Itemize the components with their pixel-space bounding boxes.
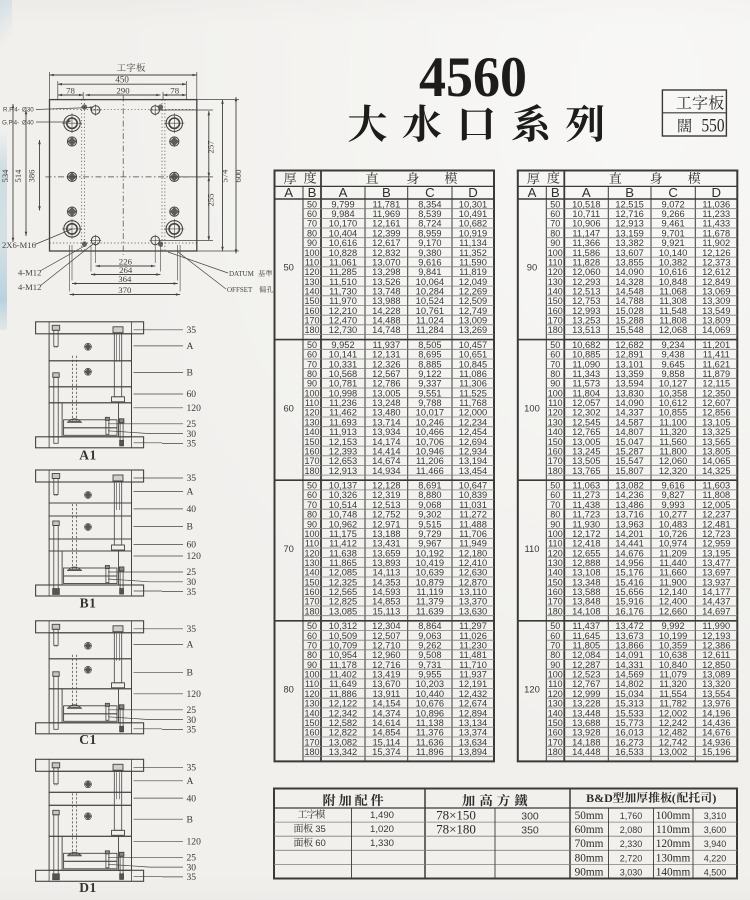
svg-text:13,105: 13,105 [702,417,730,427]
svg-text:13,454: 13,454 [459,466,487,476]
svg-text:10,879: 10,879 [416,577,444,587]
svg-text:10,974: 10,974 [659,539,687,549]
svg-text:15,113: 15,113 [373,606,401,616]
svg-text:12,320: 12,320 [659,466,687,476]
svg-text:15,656: 15,656 [615,587,643,597]
svg-text:60: 60 [315,838,326,849]
svg-text:550: 550 [702,116,725,137]
svg-text:A: A [187,640,194,651]
svg-text:11,621: 11,621 [702,359,730,369]
svg-text:12,084: 12,084 [572,650,600,660]
svg-text:12,913: 12,913 [615,219,643,229]
svg-text:14,674: 14,674 [372,456,400,466]
svg-text:12,481: 12,481 [702,519,730,529]
svg-text:14,448: 14,448 [572,747,600,757]
svg-text:120mm: 120mm [656,838,691,850]
svg-text:9,461: 9,461 [661,219,684,229]
svg-text:364: 364 [118,274,132,284]
svg-text:13,359: 13,359 [615,369,643,379]
svg-text:13,893: 13,893 [372,558,400,568]
svg-text:11,433: 11,433 [702,219,730,229]
svg-text:13,188: 13,188 [372,529,400,539]
svg-text:11,079: 11,079 [659,670,687,680]
svg-text:10,706: 10,706 [416,437,444,447]
svg-text:60: 60 [283,402,293,413]
svg-text:100: 100 [548,248,563,258]
svg-text:150: 150 [548,296,563,306]
svg-text:10,855: 10,855 [659,408,687,418]
svg-text:11,990: 11,990 [702,621,730,631]
svg-text:140: 140 [304,427,319,437]
svg-text:13,486: 13,486 [615,500,643,510]
svg-text:13,134: 13,134 [459,718,487,728]
svg-text:8,354: 8,354 [418,199,441,209]
svg-text:13,670: 13,670 [372,679,400,689]
svg-text:9,952: 9,952 [331,340,354,350]
svg-text:11,308: 11,308 [659,296,687,306]
svg-text:11,138: 11,138 [416,718,444,728]
svg-text:11,063: 11,063 [572,481,600,491]
svg-text:14,853: 14,853 [372,597,400,607]
svg-text:11,206: 11,206 [416,456,444,466]
svg-text:12,674: 12,674 [459,699,487,709]
svg-text:13,928: 13,928 [572,728,600,738]
svg-text:8,880: 8,880 [418,490,441,500]
svg-text:11,379: 11,379 [416,597,444,607]
svg-text:15,773: 15,773 [615,718,643,728]
svg-text:12,959: 12,959 [702,539,730,549]
svg-text:11,808: 11,808 [702,490,730,500]
svg-text:11,638: 11,638 [329,548,357,558]
svg-text:11,402: 11,402 [329,670,357,680]
svg-text:OFFSET: OFFSET [227,286,253,294]
svg-text:12,894: 12,894 [459,708,487,718]
svg-text:14,614: 14,614 [372,718,400,728]
svg-text:15,287: 15,287 [615,446,643,456]
svg-text:10,848: 10,848 [659,277,687,287]
svg-text:13,108: 13,108 [572,568,600,578]
svg-text:12,482: 12,482 [659,728,687,738]
svg-text:13,549: 13,549 [702,306,730,316]
svg-text:70: 70 [550,500,560,510]
svg-text:10,828: 10,828 [329,248,357,258]
svg-text:12,242: 12,242 [659,718,687,728]
svg-text:3,310: 3,310 [704,811,727,821]
svg-text:11,233: 11,233 [702,209,730,219]
svg-text:14,196: 14,196 [702,708,730,718]
svg-text:130mm: 130mm [656,852,691,864]
svg-text:12,786: 12,786 [372,379,400,389]
svg-text:13,005: 13,005 [572,437,600,447]
svg-text:B: B [187,368,193,379]
svg-text:12,342: 12,342 [329,708,357,718]
svg-text:120: 120 [187,689,202,700]
svg-text:300: 300 [521,810,539,822]
svg-text:80: 80 [550,510,560,520]
svg-text:160: 160 [548,306,563,316]
svg-text:350: 350 [521,825,539,837]
svg-text:B: B [187,522,193,533]
svg-text:12,655: 12,655 [572,548,600,558]
svg-text:9,337: 9,337 [418,379,441,389]
svg-text:10,748: 10,748 [329,510,357,520]
svg-text:35: 35 [187,763,197,774]
svg-text:(: ( [672,791,676,805]
svg-text:14,436: 14,436 [702,718,730,728]
svg-text:D1: D1 [79,880,97,895]
svg-text:150: 150 [304,577,319,587]
svg-text:13,298: 13,298 [372,267,400,277]
svg-text:DATUM: DATUM [229,270,255,278]
svg-text:14,174: 14,174 [372,437,400,447]
svg-text:13,594: 13,594 [615,379,643,389]
svg-text:12,068: 12,068 [659,325,687,335]
svg-text:11,031: 11,031 [459,500,487,510]
svg-text:11,828: 11,828 [572,257,600,267]
svg-text:14,113: 14,113 [373,568,401,578]
svg-text:): ) [712,791,716,805]
svg-text:130: 130 [304,699,319,709]
svg-text:9,984: 9,984 [331,209,354,219]
svg-text:R.P.4-: R.P.4- [3,107,20,114]
svg-text:80: 80 [283,684,293,695]
svg-text:160: 160 [304,446,319,456]
svg-text:10,781: 10,781 [329,379,357,389]
svg-text:100: 100 [304,248,319,258]
svg-text:11,603: 11,603 [702,481,730,491]
svg-text:50: 50 [307,621,317,631]
svg-text:180: 180 [548,466,563,476]
svg-text:534: 534 [0,169,10,183]
svg-text:60: 60 [307,631,317,641]
svg-text:120: 120 [187,837,202,848]
svg-text:2,720: 2,720 [620,853,643,863]
svg-text:50: 50 [550,621,560,631]
svg-text:35: 35 [187,872,197,883]
svg-text:14,748: 14,748 [372,325,400,335]
svg-text:12,723: 12,723 [702,529,730,539]
svg-text:10,277: 10,277 [659,510,687,520]
svg-text:10,651: 10,651 [459,350,487,360]
svg-text:11,376: 11,376 [416,728,444,738]
svg-text:9,701: 9,701 [661,228,684,238]
svg-text:11,636: 11,636 [416,737,444,747]
svg-text:13,228: 13,228 [572,699,600,709]
svg-text:11,134: 11,134 [459,238,487,248]
svg-text:9,234: 9,234 [661,340,684,350]
svg-text:14,676: 14,676 [615,548,643,558]
svg-text:12,515: 12,515 [615,199,643,209]
svg-text:14,956: 14,956 [615,558,643,568]
svg-text:11,209: 11,209 [659,548,687,558]
svg-text:13,472: 13,472 [615,621,643,631]
svg-text:12,128: 12,128 [372,481,400,491]
svg-text:160: 160 [548,446,563,456]
svg-text:170: 170 [548,316,563,326]
svg-text:140: 140 [304,568,319,578]
svg-text:10,518: 10,518 [572,199,600,209]
svg-text:60mm: 60mm [575,824,604,836]
svg-text:12,611: 12,611 [702,650,730,660]
svg-text:130: 130 [548,277,563,287]
svg-text:10,326: 10,326 [329,490,357,500]
svg-text:1,020: 1,020 [370,824,394,835]
svg-text:12,617: 12,617 [372,238,400,248]
svg-text:11,586: 11,586 [572,248,600,258]
svg-text:B&D: B&D [586,791,613,805]
svg-text:255: 255 [206,194,216,207]
svg-text:100: 100 [304,529,319,539]
svg-text:100: 100 [304,388,319,398]
svg-text:9,068: 9,068 [418,500,441,510]
svg-text:9,729: 9,729 [418,529,441,539]
svg-text:12,752: 12,752 [372,510,400,520]
svg-text:35: 35 [315,824,326,835]
svg-text:12,507: 12,507 [372,631,400,641]
svg-text:13,673: 13,673 [615,631,643,641]
svg-text:B: B [382,185,391,200]
svg-text:12,180: 12,180 [459,548,487,558]
svg-text:15,548: 15,548 [615,325,643,335]
svg-text:100: 100 [548,529,563,539]
svg-text:13,477: 13,477 [702,558,730,568]
svg-text:10,491: 10,491 [459,209,487,219]
svg-text:C1: C1 [79,732,97,747]
svg-text:13,830: 13,830 [615,388,643,398]
svg-text:9,438: 9,438 [661,350,684,360]
svg-text:12,749: 12,749 [459,306,487,316]
svg-text:12,060: 12,060 [572,267,600,277]
svg-text:11,230: 11,230 [459,641,487,651]
svg-text:35: 35 [187,624,197,635]
svg-text:170: 170 [548,597,563,607]
svg-text:450: 450 [115,74,129,84]
svg-text:11,710: 11,710 [459,660,487,670]
svg-text:12,849: 12,849 [702,277,730,287]
svg-text:13,370: 13,370 [459,597,487,607]
svg-text:12,373: 12,373 [702,257,730,267]
svg-text:10,639: 10,639 [416,568,444,578]
svg-text:180: 180 [548,747,563,757]
svg-text:11,573: 11,573 [572,379,600,389]
svg-text:B: B [187,815,193,826]
svg-text:12,630: 12,630 [459,568,487,578]
svg-text:170: 170 [548,737,563,747]
svg-text:9,616: 9,616 [418,257,441,267]
svg-text:90: 90 [550,660,560,670]
svg-text:4-M12: 4-M12 [18,282,41,292]
svg-text:12,832: 12,832 [372,248,400,258]
svg-text:13,002: 13,002 [659,747,687,757]
svg-text:15,047: 15,047 [615,437,643,447]
svg-text:13,195: 13,195 [702,548,730,558]
svg-text:12,237: 12,237 [702,510,730,520]
svg-text:11,272: 11,272 [459,510,487,520]
svg-text:9,788: 9,788 [418,398,441,408]
svg-text:8,691: 8,691 [418,481,441,491]
svg-text:13,309: 13,309 [702,296,730,306]
svg-text:50mm: 50mm [575,810,604,822]
svg-text:Ø40: Ø40 [22,120,34,127]
svg-text:70: 70 [307,219,317,229]
svg-text:14,331: 14,331 [615,660,643,670]
svg-text:110: 110 [305,679,319,689]
svg-text:12,660: 12,660 [659,606,687,616]
svg-text:35: 35 [187,473,197,484]
svg-text:100: 100 [304,670,319,680]
svg-text:12,325: 12,325 [329,577,357,587]
svg-text:9,515: 9,515 [418,519,441,529]
svg-text:11,462: 11,462 [329,408,357,418]
svg-text:4,220: 4,220 [704,853,727,863]
svg-text:90: 90 [307,379,317,389]
svg-text:12,131: 12,131 [372,350,400,360]
svg-text:150: 150 [548,718,563,728]
svg-text:10,137: 10,137 [329,481,357,491]
svg-text:60: 60 [550,631,560,641]
svg-text:180: 180 [304,606,319,616]
svg-text:140: 140 [548,427,563,437]
svg-text:14,188: 14,188 [572,737,600,747]
svg-text:12,856: 12,856 [702,408,730,418]
svg-text:14,414: 14,414 [372,446,400,456]
svg-text:40: 40 [187,504,197,515]
svg-text:12,399: 12,399 [372,228,400,238]
svg-text:11,366: 11,366 [572,238,600,248]
svg-text:11,900: 11,900 [659,577,687,587]
svg-text:9,266: 9,266 [661,209,684,219]
svg-text:10,676: 10,676 [416,699,444,709]
svg-text:13,866: 13,866 [615,641,643,651]
svg-text:60: 60 [550,350,560,360]
svg-text:180: 180 [304,325,319,335]
svg-text:10,404: 10,404 [329,228,357,238]
svg-text:13,894: 13,894 [459,747,487,757]
svg-text:11,352: 11,352 [459,248,487,258]
svg-text:180: 180 [304,747,319,757]
svg-text:13,419: 13,419 [372,670,400,680]
svg-text:11,488: 11,488 [459,519,487,529]
svg-text:12,870: 12,870 [459,577,487,587]
svg-text:10,331: 10,331 [329,359,357,369]
svg-text:12,085: 12,085 [329,568,357,578]
svg-text:13,085: 13,085 [329,606,357,616]
svg-text:120: 120 [304,408,319,418]
svg-text:B: B [551,185,560,200]
svg-text:10,203: 10,203 [416,679,444,689]
svg-text:10,998: 10,998 [329,388,357,398]
svg-text:12,210: 12,210 [329,306,357,316]
svg-text:13,809: 13,809 [702,316,730,326]
svg-text:10,954: 10,954 [329,650,357,660]
svg-text:11,645: 11,645 [572,631,600,641]
svg-text:13,526: 13,526 [372,277,400,287]
svg-text:13,082: 13,082 [329,737,357,747]
svg-text:12,913: 12,913 [329,466,357,476]
svg-text:11,440: 11,440 [659,558,687,568]
svg-text:130: 130 [304,417,319,427]
svg-text:12,386: 12,386 [702,641,730,651]
svg-text:10,682: 10,682 [572,340,600,350]
svg-text:13,009: 13,009 [459,316,487,326]
svg-text:10,612: 10,612 [659,398,687,408]
svg-text:10,140: 10,140 [659,248,687,258]
svg-text:11,437: 11,437 [572,621,600,631]
svg-text:A: A [187,776,194,787]
svg-text:12,470: 12,470 [329,316,357,326]
svg-text:15,416: 15,416 [615,577,643,587]
svg-text:11,782: 11,782 [659,699,687,709]
svg-text:160: 160 [304,728,319,738]
svg-text:13,714: 13,714 [372,417,400,427]
svg-text:12,971: 12,971 [372,519,400,529]
svg-text:11,466: 11,466 [416,466,444,476]
svg-text:80mm: 80mm [575,852,604,864]
svg-text:10,682: 10,682 [459,219,487,229]
svg-text:80: 80 [550,228,560,238]
svg-text:13,089: 13,089 [702,670,730,680]
svg-text:78: 78 [66,86,75,96]
svg-text:90: 90 [550,238,560,248]
svg-text:14,090: 14,090 [615,398,643,408]
svg-text:12,710: 12,710 [372,641,400,651]
svg-text:70: 70 [307,359,317,369]
svg-text:11,678: 11,678 [702,228,730,238]
svg-text:11,525: 11,525 [459,388,487,398]
svg-text:9,827: 9,827 [661,490,684,500]
svg-text:10,638: 10,638 [659,650,687,660]
svg-text:12,234: 12,234 [459,417,487,427]
svg-text:386: 386 [27,169,37,183]
svg-text:110: 110 [548,679,562,689]
svg-text:35: 35 [187,725,197,736]
svg-text:13,634: 13,634 [459,737,487,747]
svg-text:13,855: 13,855 [615,257,643,267]
svg-text:8,505: 8,505 [418,340,441,350]
svg-text:12,153: 12,153 [329,437,357,447]
svg-text:70: 70 [307,500,317,510]
svg-text:50: 50 [307,340,317,350]
svg-text:100: 100 [548,670,563,680]
svg-text:11,100: 11,100 [659,417,687,427]
svg-text:180: 180 [548,606,563,616]
svg-text:11,320: 11,320 [659,679,687,689]
svg-text:140: 140 [548,568,563,578]
svg-text:11,902: 11,902 [702,238,730,248]
svg-text:80: 80 [307,369,317,379]
svg-text:11,554: 11,554 [659,689,687,699]
svg-text:13,934: 13,934 [372,427,400,437]
svg-text:130: 130 [304,558,319,568]
svg-text:80: 80 [550,650,560,660]
svg-text:90: 90 [307,660,317,670]
svg-text:14,090: 14,090 [615,267,643,277]
svg-text:11,937: 11,937 [459,670,487,680]
svg-text:16,176: 16,176 [615,606,643,616]
svg-text:13,630: 13,630 [459,606,487,616]
svg-text:90: 90 [550,519,560,529]
svg-text:13,588: 13,588 [572,587,600,597]
svg-text:170: 170 [304,456,319,466]
svg-text:11,879: 11,879 [702,369,730,379]
svg-text:12,993: 12,993 [572,306,600,316]
svg-text:11,320: 11,320 [659,427,687,437]
svg-text:14,325: 14,325 [702,466,730,476]
svg-text:12,545: 12,545 [572,417,600,427]
svg-text:12,057: 12,057 [572,398,600,408]
svg-text:14,676: 14,676 [702,728,730,738]
svg-text:12,060: 12,060 [659,456,687,466]
